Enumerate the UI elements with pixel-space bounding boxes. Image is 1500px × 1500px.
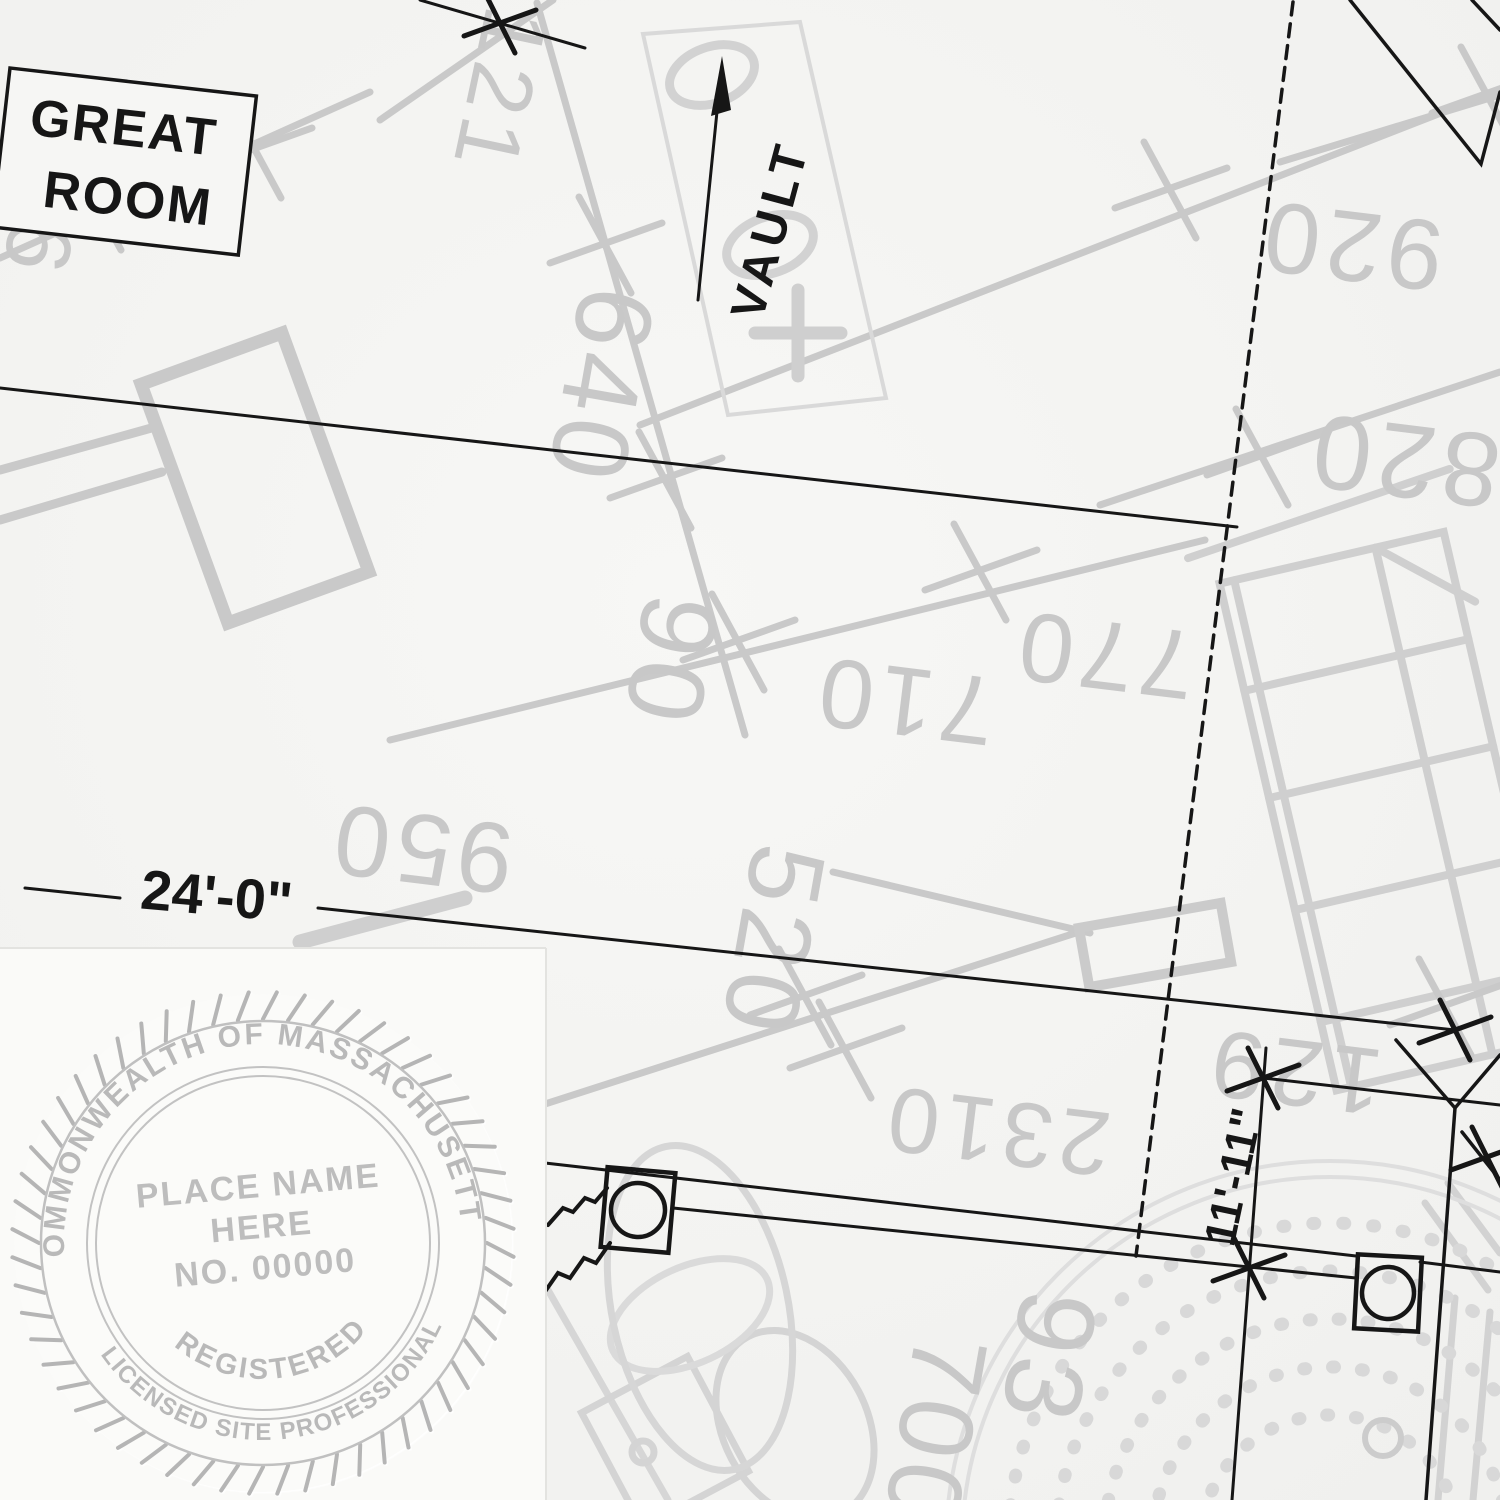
scanned-plan-sheet: 86 121 640 90 950 520 710 770 920 820 23… [0, 0, 1500, 1500]
faded-number: 920 [1252, 179, 1449, 313]
dimension-24ft-label: 24'-0" [138, 858, 295, 934]
faded-number: 770 [1007, 590, 1201, 721]
great-room-label-box: GREAT ROOM [0, 68, 256, 255]
faded-number: 90 [601, 586, 743, 737]
faded-number: 710 [807, 636, 1001, 767]
faded-number: 950 [322, 782, 519, 916]
faded-number: 93 [977, 1282, 1121, 1436]
faded-number: 820 [1301, 390, 1500, 530]
